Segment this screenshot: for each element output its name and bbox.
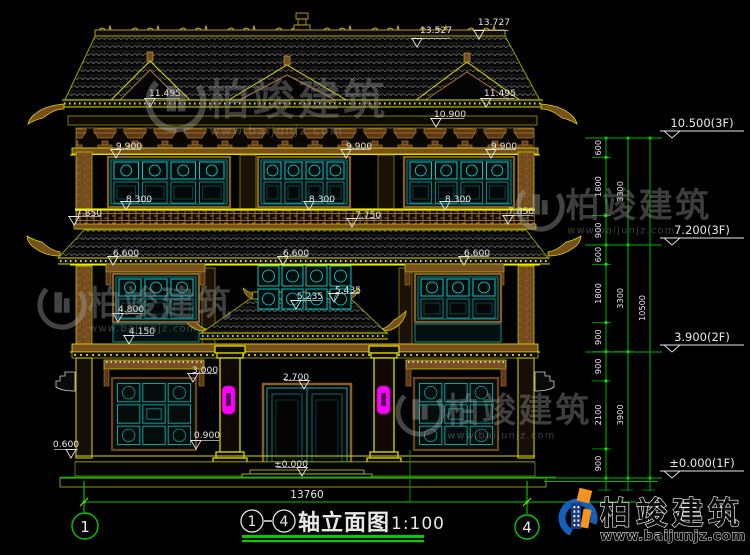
watermark-url: www.baijunjz.com: [447, 430, 555, 441]
eave-tip-left: [28, 104, 64, 124]
dimension-label: 6.600: [283, 248, 309, 259]
elevation-triangle-icon: [66, 450, 76, 459]
corbel-right: [535, 372, 554, 391]
drawing-scale: 1:100: [391, 514, 445, 534]
dimension-label: 9.900: [491, 141, 517, 152]
title-axis-start: 1: [248, 514, 257, 530]
watermark-company: 柏竣建筑: [208, 76, 389, 125]
dimension-label: 0.600: [53, 439, 79, 450]
chain-dimension-value: 1800: [593, 283, 603, 304]
dimension-label: 9.900: [346, 141, 372, 152]
chain-dimension-value: 600: [593, 140, 603, 156]
eave-tip-right: [548, 236, 581, 256]
axis-bubble-1-label: 1: [80, 518, 90, 536]
watermark-company: 柏竣建筑: [88, 284, 234, 324]
ridge-finial: [294, 13, 310, 32]
dimension-label: 0.900: [194, 430, 220, 441]
axis-bubble-4-label: 4: [522, 519, 532, 537]
watermark-url: www.baijunjz.com: [567, 225, 675, 236]
title-underline-2: [242, 540, 424, 542]
brand-logo: 柏竣建筑www.baijunjz.com: [557, 488, 746, 544]
dimension-label: 7.750: [355, 210, 381, 221]
level-triangle-icon: [664, 131, 680, 138]
cad-elevation-drawing: 1413760 13.52713.72711.49511.49510.9009.…: [0, 0, 750, 555]
watermark-company: 柏竣建筑: [566, 186, 712, 226]
dimension-label: ±0.000: [274, 459, 308, 470]
dimension-label: 3.000: [192, 365, 218, 376]
balcony-railing: [74, 210, 536, 229]
watermark-url: www.baijunjz.com: [89, 323, 197, 334]
level-label: 10.500(3F): [670, 116, 733, 130]
title-axis-end: 4: [280, 514, 289, 530]
overall-dimension-label: 13760: [290, 489, 323, 501]
chain-dimension-value: 600: [593, 247, 603, 263]
level-marker: 3.900(2F): [585, 330, 744, 352]
chain-dimension-value: 900: [593, 456, 603, 472]
level-marker: 10.500(3F): [585, 116, 744, 138]
level-triangle-icon: [664, 471, 680, 478]
level-triangle-icon: [664, 238, 680, 245]
dimension-label: 9.900: [116, 141, 142, 152]
chain-dimension-value: 10500: [637, 295, 647, 321]
entrance-door: [263, 384, 351, 470]
dimension-label: 2.700: [283, 372, 309, 383]
drawing-title-block: 14轴立面图1:100: [241, 510, 445, 542]
dimension-label: 6.600: [464, 248, 490, 259]
chain-dimension-value: 2100: [593, 404, 603, 425]
dimension-label: 6.600: [113, 248, 139, 259]
chain-dimension-value: 900: [593, 358, 603, 374]
dimension-label: 11.495: [484, 88, 516, 99]
level-markers: 10.500(3F)7.200(3F)3.900(2F)±0.000(1F): [585, 116, 744, 478]
level-triangle-icon: [664, 345, 680, 352]
brand-url: www.baijunjz.com: [600, 528, 746, 544]
elevation-canvas: 1413760 13.52713.72711.49511.49510.9009.…: [0, 0, 750, 555]
eave-tip-left: [27, 236, 60, 256]
dimension-label: 7.850: [76, 208, 102, 219]
chain-dimension-value: 3900: [615, 404, 625, 425]
watermark-url: www.baijunjz.com: [210, 124, 344, 138]
entry-step-1: [250, 470, 364, 474]
dimension-label: 13.727: [478, 17, 510, 28]
panel-window: [112, 378, 196, 450]
level-label: ±0.000(1F): [669, 456, 734, 470]
level-label: 3.900(2F): [674, 330, 730, 344]
lattice-window: [258, 157, 350, 207]
chain-dimension-value: 3300: [615, 288, 625, 309]
brand-company-name: 柏竣建筑: [600, 496, 744, 532]
watermark-company: 柏竣建筑: [446, 391, 592, 431]
dimension-label: 13.527: [420, 25, 452, 36]
drawing-title: 轴立面图: [298, 510, 390, 536]
chain-dimension-value: 900: [593, 329, 603, 345]
corbel-left: [56, 372, 75, 391]
footing-slab: [60, 478, 546, 487]
eave-tip-right: [541, 104, 577, 124]
lattice-window: [415, 274, 501, 322]
level-marker: ±0.000(1F): [585, 456, 744, 478]
